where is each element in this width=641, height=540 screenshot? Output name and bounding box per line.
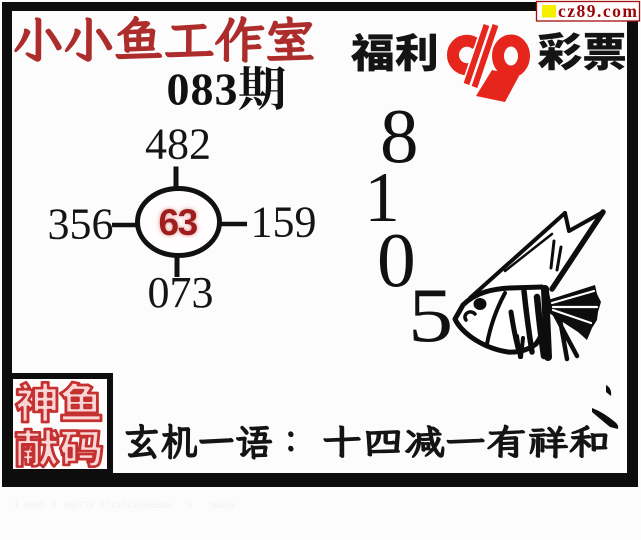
svg-text:cz89.com: cz89.com <box>558 1 637 21</box>
svg-text:159: 159 <box>251 198 317 247</box>
svg-text:073: 073 <box>148 268 214 317</box>
svg-text:482: 482 <box>145 120 211 169</box>
svg-text:63: 63 <box>159 202 198 243</box>
svg-text:5: 5 <box>408 273 453 358</box>
svg-text:356: 356 <box>48 200 114 249</box>
svg-text:1 9690 3 860736 37 01723: 1 9690 3 860736 37 017233565636 3 36335 <box>14 500 234 510</box>
svg-text:083: 083 <box>167 64 238 115</box>
